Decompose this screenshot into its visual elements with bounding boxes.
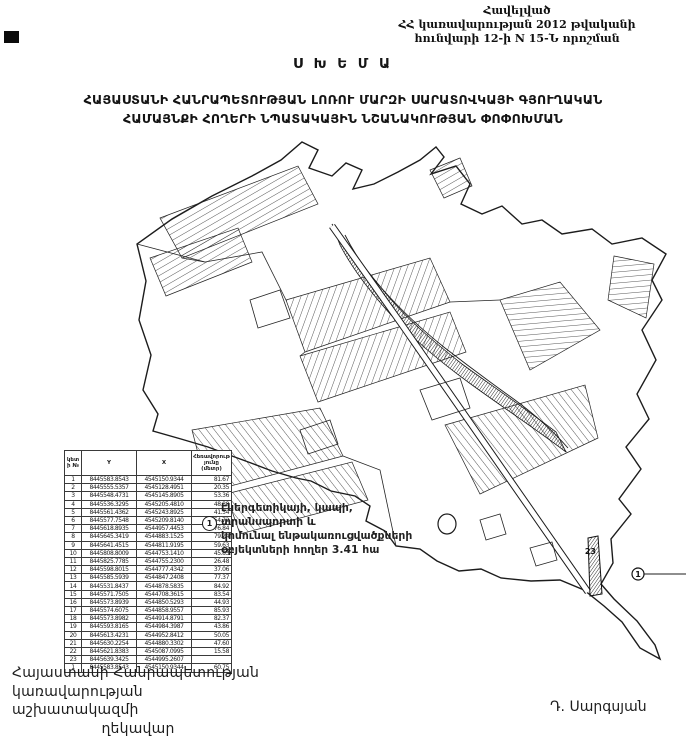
table-row: 138445585.59394544847.240877.37: [65, 574, 232, 582]
table-row: 88445645.34194544883.152579.24: [65, 533, 232, 541]
legend-line-2: կոմունալ ենթակառուցվածքների: [221, 529, 421, 543]
col-header-x: X: [137, 451, 192, 476]
table-row: 238445639.34254544995.2607: [65, 656, 232, 664]
table-row: 38445548.47314545145.890553.36: [65, 492, 232, 500]
table-row: 108445808.80094544753.141045.83: [65, 549, 232, 557]
signature-right-name: Դ. Սարգսյան: [550, 699, 680, 715]
legend-line-3: օբյեկտների հողեր 3.41 հա: [221, 543, 421, 557]
coords-table-body: 18445583.85434545150.934481.6728445555.5…: [65, 476, 232, 673]
subject-parcel: [588, 536, 602, 596]
legend-symbol-number: 1: [207, 519, 213, 528]
table-row: 228445621.83834545087.099515.58: [65, 647, 232, 655]
table-row: 18445583.85434545150.934481.67: [65, 476, 232, 484]
legend-area-value: 3.41 հա: [332, 543, 379, 556]
table-row: 178445574.60754544858.955785.93: [65, 607, 232, 615]
signature-left-line-3: ղեկավար: [12, 720, 264, 739]
table-row: 208445613.42314544952.841250.05: [65, 631, 232, 639]
signature-left-line-2: կառավարության աշխատակազմի: [12, 683, 264, 720]
table-row: 48445536.32954545205.481048.88: [65, 500, 232, 508]
col-header-distance: Հեռավորությունը (մետր): [192, 451, 232, 476]
legend-symbol-circle: 1: [202, 516, 217, 531]
table-row: 148445531.84374544878.583584.92: [65, 582, 232, 590]
table-header-row: կետի № Y X Հեռավորությունը (մետր): [65, 451, 232, 476]
parcel-symbol-number: 1: [635, 570, 641, 579]
table-row: 58445561.43624545243.892541.54: [65, 508, 232, 516]
table-row: 128445598.80154544777.434237.06: [65, 566, 232, 574]
col-header-y: Y: [82, 451, 137, 476]
point-23-label: 23: [585, 547, 596, 556]
table-row: 98445641.45154544811.919559.63: [65, 541, 232, 549]
table-row: 158445571.75054544708.361583.54: [65, 590, 232, 598]
legend-line-3-text: օբյեկտների հողեր: [221, 543, 328, 556]
coordinates-table: կետի № Y X Հեռավորությունը (մետր) 184455…: [64, 450, 232, 673]
table-row: 188445573.89824544914.879182.37: [65, 615, 232, 623]
signature-left-line-1: Հայաստանի Հանրապետության: [12, 664, 264, 683]
legend-text: էներգետիկայի, կապի, տրանսպորտի և կոմունա…: [221, 501, 421, 557]
table-row: 118445825.77854544755.230026.48: [65, 557, 232, 565]
table-row: 28445555.53574545128.495120.35: [65, 484, 232, 492]
table-row: 168445573.89394544850.529344.93: [65, 598, 232, 606]
table-row: 218445630.22544544880.330247.60: [65, 639, 232, 647]
table-row: 198445593.81654544984.398743.86: [65, 623, 232, 631]
col-header-point-no: կետի №: [65, 451, 82, 476]
legend-line-1: էներգետիկայի, կապի, տրանսպորտի և: [221, 501, 421, 529]
pond: [438, 514, 456, 534]
signature-left-block: Հայաստանի Հանրապետության կառավարության ա…: [12, 664, 264, 738]
